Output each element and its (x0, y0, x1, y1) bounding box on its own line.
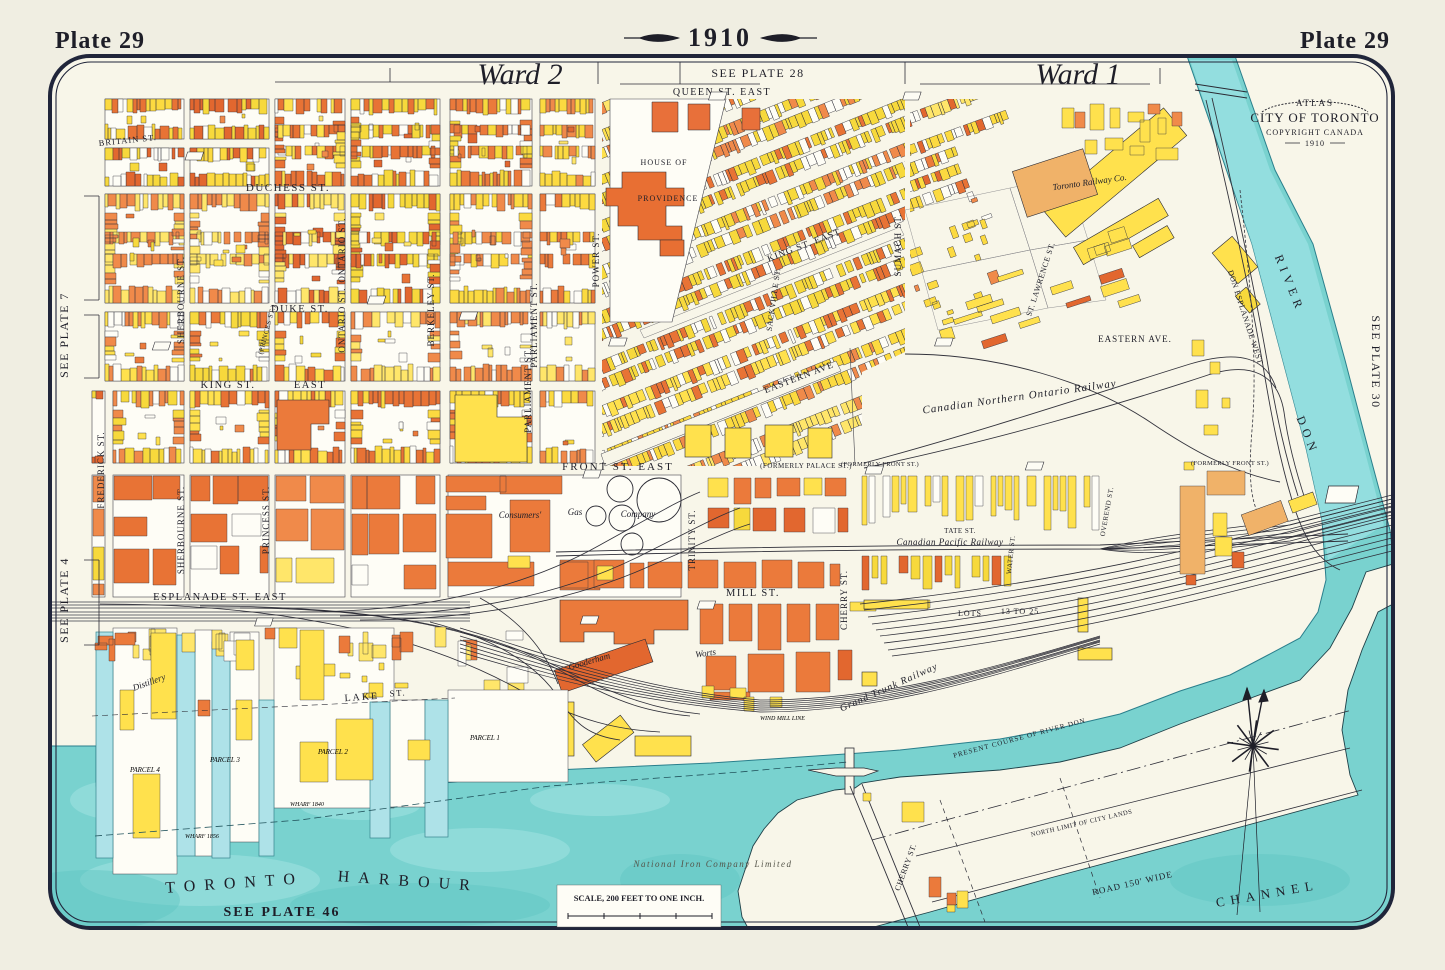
svg-text:COPYRIGHT CANADA: COPYRIGHT CANADA (1266, 128, 1364, 137)
svg-text:SHERBOURNE ST.: SHERBOURNE ST. (176, 256, 186, 344)
svg-text:ONTARIO ST.: ONTARIO ST. (337, 287, 347, 352)
svg-text:HOUSE OF: HOUSE OF (641, 158, 688, 167)
svg-text:WIND MILL LINE: WIND MILL LINE (760, 716, 805, 722)
svg-text:TRINITY ST.: TRINITY ST. (687, 510, 697, 571)
svg-text:Plate 29: Plate 29 (55, 28, 145, 54)
svg-text:CITY OF TORONTO: CITY OF TORONTO (1250, 110, 1379, 125)
svg-text:Company: Company (621, 509, 656, 519)
svg-text:1910: 1910 (688, 23, 752, 52)
svg-text:PARCEL 4: PARCEL 4 (129, 766, 160, 774)
svg-text:ESPLANADE ST. EAST: ESPLANADE ST. EAST (153, 592, 287, 603)
svg-text:ONTARIO ST.: ONTARIO ST. (337, 217, 347, 282)
svg-text:PARCEL 1: PARCEL 1 (469, 734, 500, 742)
svg-text:LOTS: LOTS (958, 609, 982, 618)
svg-text:PARCEL 2: PARCEL 2 (317, 748, 348, 756)
svg-text:(FORMERLY PALACE ST.): (FORMERLY PALACE ST.) (760, 462, 852, 470)
svg-text:CHERRY ST.: CHERRY ST. (839, 570, 849, 630)
svg-text:SCALE, 200 FEET TO ONE INCH.: SCALE, 200 FEET TO ONE INCH. (574, 893, 705, 903)
svg-text:DUKE ST.: DUKE ST. (271, 304, 329, 315)
svg-text:Consumers': Consumers' (499, 510, 543, 520)
svg-text:PARLIAMENT ST.: PARLIAMENT ST. (529, 282, 539, 367)
svg-text:SEE PLATE 28: SEE PLATE 28 (711, 66, 804, 80)
svg-text:Canadian Pacific Railway: Canadian Pacific Railway (897, 537, 1004, 547)
svg-text:PARCEL 3: PARCEL 3 (209, 756, 240, 764)
svg-text:SHERBOURNE ST.: SHERBOURNE ST. (176, 486, 186, 574)
svg-text:ST.: ST. (389, 687, 406, 698)
svg-text:MILL ST.: MILL ST. (726, 588, 780, 599)
svg-text:FRONT ST. EAST: FRONT ST. EAST (562, 461, 674, 473)
svg-text:SEE PLATE 46: SEE PLATE 46 (223, 905, 340, 920)
svg-text:1910: 1910 (1305, 139, 1325, 148)
svg-text:Ward 1: Ward 1 (1035, 58, 1120, 91)
svg-text:EAST: EAST (294, 380, 326, 391)
svg-text:13 TO 25: 13 TO 25 (1001, 607, 1039, 616)
svg-text:(FORMERLY FRONT ST.): (FORMERLY FRONT ST.) (1191, 460, 1269, 467)
svg-text:ATLAS: ATLAS (1296, 98, 1334, 108)
svg-text:SEE PLATE 30: SEE PLATE 30 (1369, 315, 1383, 408)
svg-text:PRINCESS ST.: PRINCESS ST. (261, 486, 271, 554)
svg-text:WHARF 1840: WHARF 1840 (290, 801, 324, 808)
svg-text:TATE ST.: TATE ST. (944, 527, 976, 535)
svg-text:National Iron Company Limit: National Iron Company Limited (633, 859, 793, 869)
svg-text:SEE PLATE 7: SEE PLATE 7 (57, 292, 71, 378)
svg-text:DUCHESS ST.: DUCHESS ST. (246, 182, 330, 194)
svg-text:WHARF 1856: WHARF 1856 (185, 834, 219, 840)
svg-text:POWER ST.: POWER ST. (591, 233, 601, 288)
svg-text:KING ST.: KING ST. (201, 380, 256, 391)
svg-text:BERKELEY ST.: BERKELEY ST. (426, 274, 436, 347)
svg-text:Ward 2: Ward 2 (477, 58, 562, 91)
svg-text:SEE PLATE 4: SEE PLATE 4 (57, 557, 71, 643)
svg-text:PROVIDENCE: PROVIDENCE (638, 194, 699, 203)
svg-text:SUMACH ST.: SUMACH ST. (893, 214, 903, 277)
svg-text:FREDERICK ST.: FREDERICK ST. (96, 431, 106, 508)
svg-text:Plate 29: Plate 29 (1300, 28, 1390, 54)
svg-text:EASTERN AVE.: EASTERN AVE. (1098, 334, 1172, 344)
svg-text:Gas: Gas (568, 507, 583, 517)
